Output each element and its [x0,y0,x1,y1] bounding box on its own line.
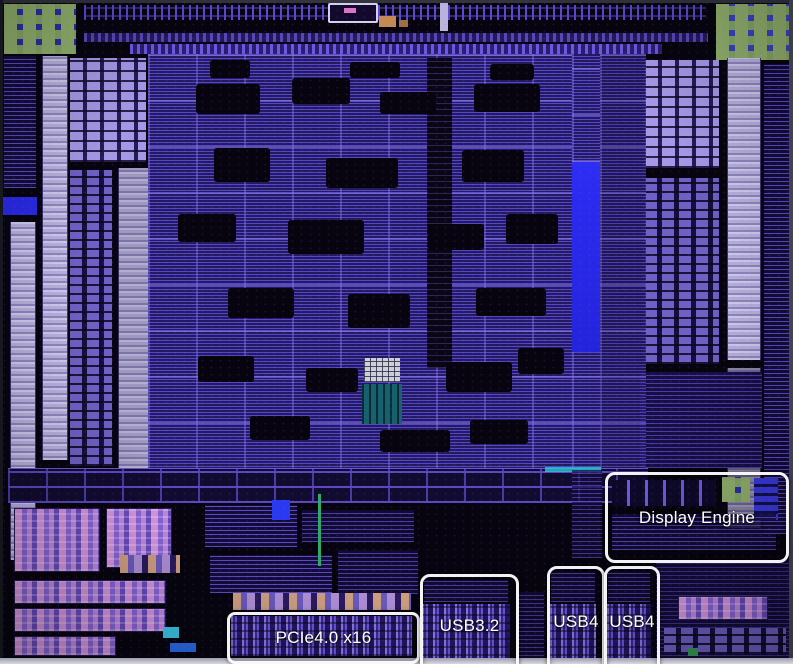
center-grid-block [364,358,400,382]
left-phy-strip-mid [118,168,150,468]
top-bus-band-upper [84,33,708,42]
analog-block-small [120,555,180,573]
bottom-right-pink-row [678,596,768,620]
die-left-edge [0,0,3,664]
mid-gap-circuitry [516,592,544,664]
dark-blob [470,420,528,444]
dark-blob [228,288,294,318]
left-edge-blue-block [3,197,37,215]
dark-blob [518,348,564,374]
left-phy-strip-inner [42,56,68,460]
annotation-label-display-engine: Display Engine [639,508,755,528]
dark-blob [326,158,398,188]
left-sram-array-lower [70,170,112,466]
dark-blob [214,148,270,182]
annotation-display-engine: Display Engine [605,472,789,563]
dark-blob [474,84,540,112]
analog-block [14,580,166,604]
top-center-pink-mark [344,8,356,13]
analog-block [14,636,116,656]
top-orange-block [379,16,396,27]
central-logic-array [148,54,572,470]
right-sram-array-lower [645,178,719,364]
top-light-column [440,3,448,31]
dark-blob [306,368,358,392]
dark-blob [476,288,546,316]
central-logic-below-highlight [572,352,600,470]
bottom-block-row-strip [8,468,648,503]
dark-blob [288,220,364,254]
dark-blob [462,150,524,182]
die-top-edge [0,0,793,3]
bright-blue-mini-block [272,500,290,520]
die-right-edge [789,0,793,664]
dark-blob [428,224,484,250]
annotation-label-usb4-right: USB4 [609,612,654,632]
left-edge-circuitry [4,56,36,188]
bottom-right-block-row [664,628,786,654]
cyan-block [163,627,179,638]
analog-block [14,608,166,632]
annotation-pcie4-x16: PCIe4.0 x16 [227,612,420,664]
right-edge-circuitry [764,64,790,534]
top-center-fuse-block [328,3,378,23]
annotation-usb32: USB3.2 [420,574,519,664]
dark-blob [250,416,310,440]
pre-pcie-block-row [233,593,411,610]
annotation-label-usb32: USB3.2 [440,616,500,636]
dark-blob [210,60,250,78]
annotation-usb4-left: USB4 [547,566,605,664]
dark-blob [506,214,558,244]
central-logic-above-highlight [572,54,600,162]
right-sram-array-upper [645,60,719,168]
dark-blob [380,430,450,452]
display-engine-left-circuitry [572,470,602,558]
chip-die-shot-image: PCIe4.0 x16 USB3.2 USB4 USB4 Display Eng… [0,0,793,664]
dark-blob [446,362,512,392]
central-logic-right-band [600,54,646,470]
dark-blob [350,62,400,78]
green-seam-line [318,494,321,566]
top-left-bond-pads [4,4,76,54]
dark-blob [196,84,260,114]
blue-highlight-bar [572,162,600,352]
analog-block [14,508,100,572]
right-phy-strip-upper [727,58,761,360]
annotation-label-usb4-left: USB4 [553,612,598,632]
dark-blob [198,356,254,382]
blue-block-small [170,643,196,652]
bottom-right-green-block [688,648,698,656]
top-right-bond-pads [716,4,790,60]
dark-blob [348,294,410,328]
center-teal-block [362,384,402,424]
top-orange-block-small [399,20,408,27]
dark-blob [380,92,436,114]
bottom-center-logic [338,550,418,594]
bottom-center-logic [210,555,332,593]
right-lower-logic [640,372,762,468]
top-bus-band-lower [130,44,662,54]
annotation-label-pcie: PCIe4.0 x16 [276,628,372,648]
dark-blob [292,78,350,104]
left-sram-array-upper [70,58,146,162]
annotation-usb4-right: USB4 [604,566,660,664]
dark-blob [490,64,534,80]
dark-blob [178,214,236,242]
